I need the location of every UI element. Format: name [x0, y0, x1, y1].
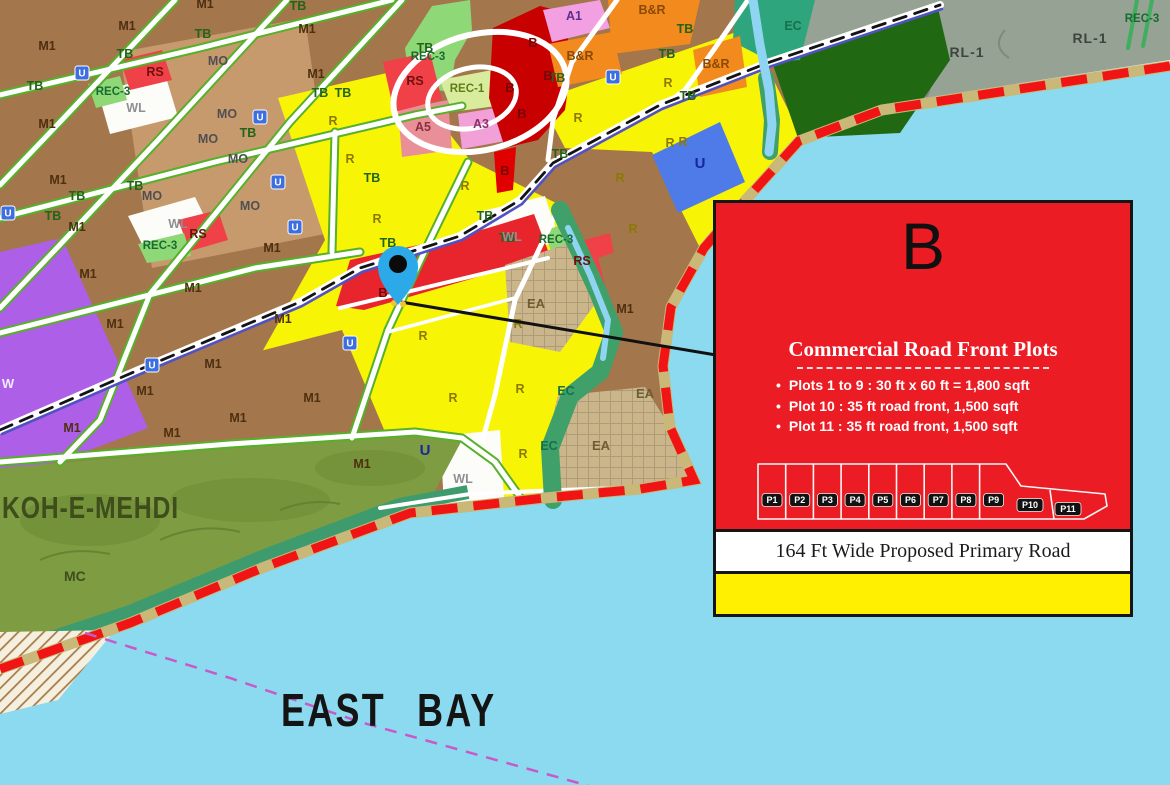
plot-chip-label: P9: [988, 495, 999, 505]
zone-label-b: B: [500, 163, 509, 178]
zone-label-ea: EA: [592, 438, 611, 453]
zone-label-tb: TB: [69, 189, 86, 203]
plot-chip-label: P10: [1022, 500, 1038, 510]
utility-badge-letter: U: [148, 361, 155, 372]
zone-label-rl-1: RL-1: [949, 44, 984, 60]
zone-label-tb: TB: [364, 171, 381, 185]
zone-label-m1: M1: [118, 19, 135, 33]
callout-yellow-band: [716, 574, 1130, 614]
hill-code-label: MC: [64, 568, 86, 584]
zone-label-r: R: [573, 111, 582, 125]
plot-chip-label: P2: [794, 495, 805, 505]
zone-label-tb: TB: [117, 47, 134, 61]
zone-label-tb: TB: [127, 179, 144, 193]
zone-label-wl: WL: [168, 217, 188, 231]
zone-label-tb: TB: [659, 47, 676, 61]
zone-label-rs: RS: [189, 227, 206, 241]
zone-label-m1: M1: [274, 312, 291, 326]
zone-label-tb: TB: [677, 22, 694, 36]
zone-label-m1: M1: [163, 426, 180, 440]
zone-label-rec-3: REC-3: [143, 240, 178, 252]
zone-letter: B: [716, 211, 1130, 281]
zone-label-m1: M1: [307, 67, 324, 81]
zone-label-tb: TB: [312, 86, 329, 100]
zone-label-r: R: [515, 382, 524, 396]
zone-label-u: U: [695, 155, 706, 172]
zone-label-w: W: [2, 376, 15, 391]
zone-label-r: R: [418, 329, 427, 343]
utility-badge-letter: U: [291, 223, 298, 234]
zone-label-wl: WL: [453, 472, 473, 486]
zone-label-m1: M1: [38, 117, 55, 131]
zone-label-rec-3: REC-3: [96, 86, 131, 98]
heading-underline: [797, 367, 1049, 369]
zone-label-rs: RS: [573, 254, 590, 268]
zone-label-b: B: [528, 35, 537, 50]
zone-label-b: B: [543, 68, 552, 83]
zone-label-tb: TB: [552, 147, 569, 161]
zone-label-b: B: [505, 80, 514, 95]
zone-label-ec: EC: [784, 19, 801, 33]
zone-label-m1: M1: [196, 0, 213, 11]
zone-label-m1: M1: [68, 220, 85, 234]
zone-label-rl-1: RL-1: [1072, 30, 1107, 46]
zone-label-b&r: B&R: [638, 3, 665, 17]
zone-label-m1: M1: [303, 391, 320, 405]
zone-label-m1: M1: [229, 411, 246, 425]
zone-label-m1: M1: [353, 457, 370, 471]
plot-spec-item: Plot 11 : 35 ft road front, 1,500 sqft: [776, 416, 1120, 437]
plot-chip-label: P11: [1060, 504, 1076, 514]
zone-label-r: R: [628, 222, 637, 236]
plot-spec-item: Plots 1 to 9 : 30 ft x 60 ft = 1,800 sqf…: [776, 375, 1120, 396]
zone-label-tb: TB: [477, 209, 494, 223]
hill-name-label: KOH-E-MEHDI: [2, 490, 179, 526]
zone-label-a1: A1: [566, 9, 582, 23]
zone-label-r: R: [678, 135, 687, 149]
zone-label-r: R: [513, 317, 522, 331]
zone-label-rec-3: REC-3: [539, 234, 574, 246]
zone-label-u: U: [420, 442, 431, 459]
plot-spec-item: Plot 10 : 35 ft road front, 1,500 sqft: [776, 396, 1120, 417]
zone-label-rec-1: REC-1: [450, 83, 485, 95]
zone-label-tb: TB: [680, 89, 697, 103]
plot-spec-list: Plots 1 to 9 : 30 ft x 60 ft = 1,800 sqf…: [776, 375, 1120, 437]
plot-chip-label: P1: [766, 495, 777, 505]
utility-badge-letter: U: [78, 69, 85, 80]
zone-label-mo: MO: [198, 132, 218, 146]
zone-label-m1: M1: [263, 241, 280, 255]
zone-label-wl: WL: [502, 230, 522, 244]
zone-label-mo: MO: [142, 189, 162, 203]
callout-heading: Commercial Road Front Plots: [716, 337, 1130, 362]
zone-label-tb: TB: [290, 0, 307, 13]
zone-label-r: R: [328, 114, 337, 128]
zoning-map-screenshot: M1M1M1M1M1M1M1M1M1M1M1M1M1M1M1M1M1M1M1M1…: [0, 0, 1170, 785]
zone-label-m1: M1: [79, 267, 96, 281]
plot-divider: [1050, 490, 1054, 519]
zone-label-tb: TB: [335, 86, 352, 100]
plot-chip-label: P8: [960, 495, 971, 505]
zone-label-r: R: [665, 136, 674, 150]
zone-label-m1: M1: [204, 357, 221, 371]
plot-chip-label: P7: [933, 495, 944, 505]
zone-label-b&r: B&R: [566, 49, 593, 63]
zone-label-a3: A3: [473, 117, 489, 131]
zone-label-ec: EC: [540, 439, 557, 453]
zone-label-m1: M1: [106, 317, 123, 331]
zone-label-r: R: [518, 447, 527, 461]
zone-label-r: R: [448, 391, 457, 405]
zone-label-mo: MO: [208, 54, 228, 68]
zone-label-rs: RS: [406, 74, 423, 88]
utility-badge-letter: U: [609, 73, 616, 84]
zone-label-wl: WL: [126, 101, 146, 115]
zone-label-m1: M1: [38, 39, 55, 53]
primary-road-band: 164 Ft Wide Proposed Primary Road: [716, 529, 1130, 574]
zone-label-r: R: [615, 171, 624, 185]
zone-label-r: R: [345, 152, 354, 166]
utility-badge-letter: U: [4, 209, 11, 220]
zone-label-m1: M1: [49, 173, 66, 187]
zone-label-tb: TB: [195, 27, 212, 41]
zone-label-m1: M1: [298, 22, 315, 36]
zone-label-tb: TB: [45, 209, 62, 223]
zone-label-ea: EA: [636, 386, 655, 401]
zone-label-m1: M1: [616, 302, 633, 316]
plot-chip-label: P3: [822, 495, 833, 505]
zone-label-mo: MO: [240, 199, 260, 213]
zone-label-mo: MO: [217, 107, 237, 121]
zone-label-b: B: [517, 106, 526, 121]
zone-label-m1: M1: [63, 421, 80, 435]
zone-label-m1: M1: [136, 384, 153, 398]
utility-badge-letter: U: [274, 178, 281, 189]
zone-label-rs: RS: [146, 65, 163, 79]
zone-label-r: R: [460, 179, 469, 193]
zone-label-mo: MO: [228, 152, 248, 166]
zone-label-tb: TB: [27, 79, 44, 93]
zone-label-r: R: [663, 76, 672, 90]
zone-label-rec-3: REC-3: [411, 51, 446, 63]
utility-badge-letter: U: [256, 113, 263, 124]
zone-label-ea: EA: [527, 296, 546, 311]
zone-label-r: R: [372, 212, 381, 226]
plot-chip-label: P4: [850, 495, 861, 505]
zone-label-rec-3: REC-3: [1125, 13, 1160, 25]
plot-chip-label: P5: [877, 495, 888, 505]
sea-name-label: EAST BAY: [281, 683, 497, 737]
utility-badge-letter: U: [346, 339, 353, 350]
zone-label-ec: EC: [557, 384, 574, 398]
plot-chip-label: P6: [905, 495, 916, 505]
zone-label-tb: TB: [240, 126, 257, 140]
callout-red-panel: B Commercial Road Front Plots Plots 1 to…: [716, 203, 1130, 529]
plot-strip-diagram: P1P2P3P4P5P6P7P8P9P10P11: [716, 451, 1130, 529]
plot-info-callout: B Commercial Road Front Plots Plots 1 to…: [713, 200, 1133, 617]
zone-label-m1: M1: [184, 281, 201, 295]
zone-label-b&r: B&R: [702, 57, 729, 71]
zone-label-a5: A5: [415, 120, 431, 134]
